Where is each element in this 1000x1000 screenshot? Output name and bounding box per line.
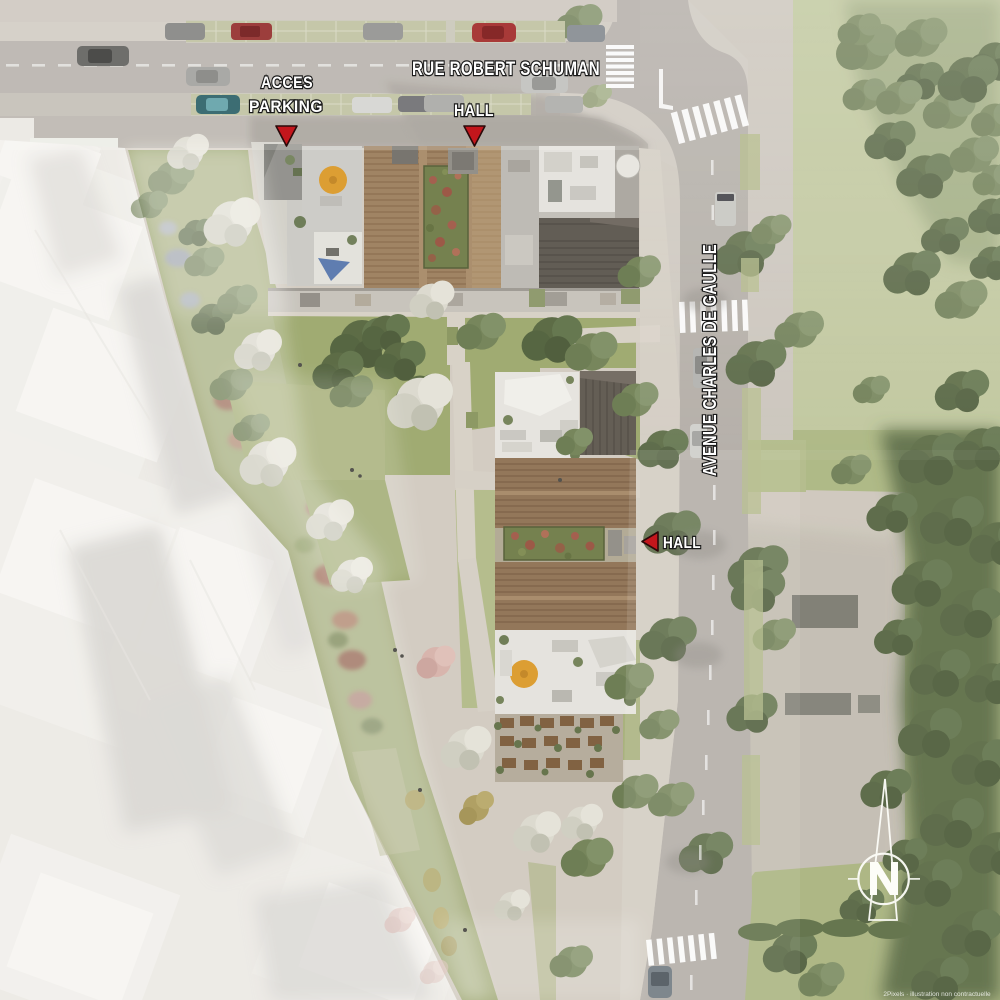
svg-text:AVENUE CHARLES DE GAULLE: AVENUE CHARLES DE GAULLE	[700, 244, 720, 476]
svg-text:ACCES: ACCES	[261, 73, 313, 92]
svg-text:2Pixels · illustration non con: 2Pixels · illustration non contractuelle	[883, 991, 991, 998]
svg-text:HALL: HALL	[454, 101, 494, 120]
svg-text:PARKING: PARKING	[249, 97, 323, 116]
svg-text:RUE ROBERT SCHUMAN: RUE ROBERT SCHUMAN	[412, 59, 600, 80]
svg-text:HALL: HALL	[663, 535, 701, 552]
